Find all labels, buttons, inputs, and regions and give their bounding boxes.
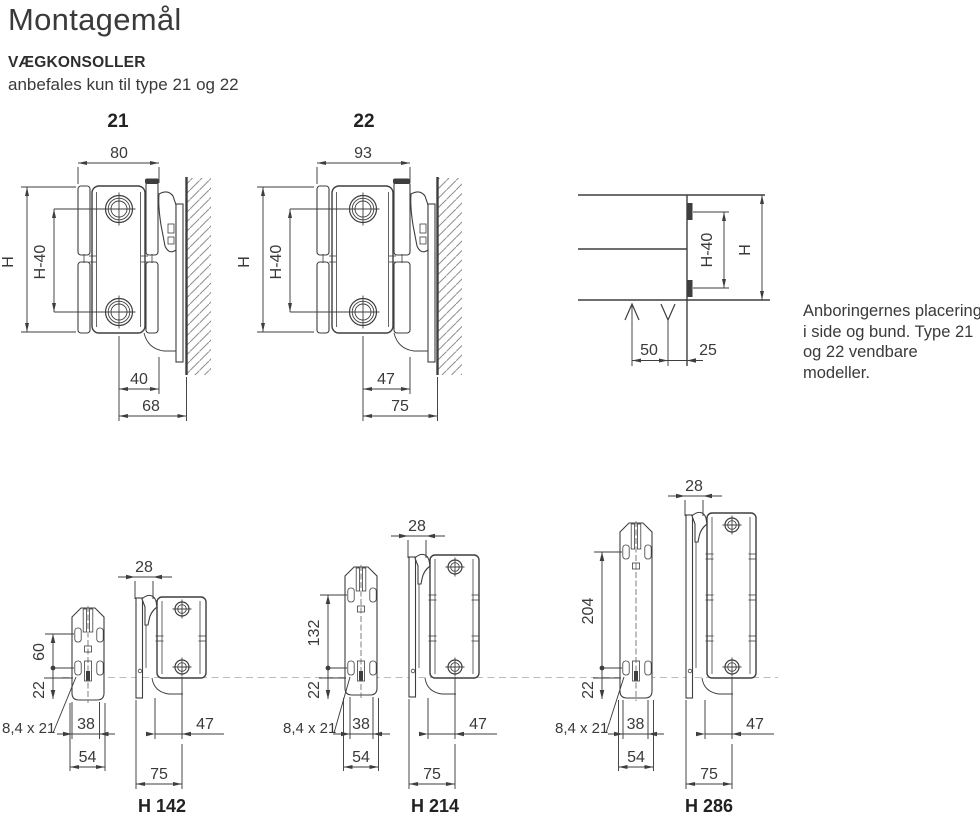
arrowhead [51, 634, 56, 643]
arrowhead [455, 732, 464, 737]
rear-panel [394, 182, 410, 255]
wall-hatching [438, 178, 462, 375]
page: Montagemål VÆGKONSOLLER anbefales kun ti… [0, 0, 980, 822]
top-grille-cap [393, 179, 410, 185]
dim-pipe-to-front: 40 [130, 371, 148, 388]
leader-line [606, 677, 624, 733]
dim-total-depth: 75 [423, 766, 441, 783]
arrowhead [146, 732, 155, 737]
dim-top-depth: 28 [135, 559, 153, 576]
arrowhead [676, 494, 685, 499]
arrowhead [63, 732, 72, 737]
dim-outlet-offset: 25 [699, 342, 717, 359]
dim-height: H [737, 244, 754, 256]
dim-bottom-offset: 22 [306, 681, 323, 699]
dim-top-depth: 28 [408, 518, 426, 535]
arrowhead [126, 575, 135, 580]
front-convector [78, 186, 90, 255]
dim-bottom-offset: 22 [31, 681, 48, 699]
bracket-wall-plate [176, 204, 183, 362]
type21-label: 21 [107, 111, 129, 132]
arrowhead [373, 732, 382, 737]
bracket-foot [425, 678, 456, 694]
dim-tapping-span: H-40 [268, 245, 285, 280]
h142-side-view [136, 595, 207, 698]
radiator-outline [707, 513, 756, 678]
arrowhead [419, 732, 428, 737]
top-grille-cap [145, 179, 159, 185]
h286-label: H 286 [685, 796, 733, 816]
dim-hole-width: 38 [627, 716, 645, 733]
bracket-foot [702, 678, 733, 694]
arrowhead [153, 575, 162, 580]
wall-hatching [187, 178, 211, 375]
front-convector [317, 186, 329, 255]
reference-dot [600, 666, 605, 671]
bracket-hook [692, 512, 707, 542]
dim-pipe-to-wall: 75 [391, 398, 409, 415]
leader-line [334, 677, 350, 733]
dim-pipe-to-wall: 68 [142, 398, 160, 415]
type22-radiator-section [317, 179, 410, 334]
dim-pipe-to-front: 47 [377, 371, 395, 388]
arrowhead [100, 732, 109, 737]
dim-bottom-offset: 22 [580, 681, 597, 699]
arrowhead [600, 552, 605, 561]
bracket-hook [159, 192, 176, 252]
dim-bracket-width: 54 [79, 749, 97, 766]
bracket-foot [394, 333, 428, 351]
dim-bracket-width: 54 [627, 749, 645, 766]
dim-hole-span: 132 [306, 620, 323, 647]
dim-total-depth: 75 [150, 766, 168, 783]
panel-outline [332, 186, 393, 333]
dim-width: 93 [354, 145, 372, 162]
rear-convector [146, 262, 158, 333]
h286-side-view [686, 512, 757, 698]
type22-label: 22 [353, 111, 374, 132]
h214-label: H 214 [411, 796, 459, 816]
dim-inlet-offset: 50 [640, 342, 658, 359]
arrowhead [732, 732, 741, 737]
arrowhead [703, 494, 712, 499]
dim-hole-width: 38 [352, 716, 370, 733]
front-convector [317, 262, 329, 333]
h142-bracket-front-view [72, 606, 104, 703]
dim-front-depth: 47 [196, 716, 214, 733]
dim-front-depth: 47 [746, 716, 764, 733]
dim-tapping-span: H-40 [699, 233, 716, 268]
arrowhead [326, 690, 331, 699]
dim-total-depth: 75 [700, 766, 718, 783]
reference-dot [326, 666, 331, 671]
leader-line [53, 677, 76, 733]
bracket-hook [142, 595, 157, 625]
tapping-bottom [688, 280, 693, 297]
arrowhead [341, 732, 350, 737]
center-slot-fill [634, 671, 638, 681]
arrowhead [426, 534, 435, 539]
end-view-diagram: H-40 H 50 25 [578, 195, 770, 366]
bracket-plate [136, 598, 143, 698]
h286-bracket-front-view [620, 521, 652, 701]
dim-height: H [0, 256, 17, 268]
rear-panel [394, 262, 410, 333]
arrowhead [51, 690, 56, 699]
dim-top-depth: 28 [685, 478, 703, 495]
h214-side-view [409, 554, 480, 697]
center-slot-fill [86, 671, 90, 681]
front-convector [78, 262, 90, 333]
bracket-hook [411, 192, 428, 252]
flow-down-arrow-icon [661, 304, 675, 320]
arrowhead [696, 732, 705, 737]
h286-diagram: 204 22 8,4 x 21 38 54 [555, 478, 774, 816]
h142-diagram: 60 22 8,4 x 21 38 54 [2, 559, 224, 816]
panel-outline [92, 186, 145, 333]
dim-front-depth: 47 [469, 716, 487, 733]
dim-hole-span: 204 [580, 598, 597, 625]
slot-size-label: 8,4 x 21 [283, 720, 336, 737]
arrowhead [687, 358, 696, 363]
bracket-foot [144, 333, 176, 351]
dim-hole-span: 60 [31, 643, 48, 661]
arrowhead [326, 595, 331, 604]
dim-tapping-span: H-40 [32, 245, 49, 280]
arrowhead [600, 690, 605, 699]
center-slot-fill [359, 671, 363, 681]
type21-radiator-section [78, 179, 159, 334]
type22-diagram: 22 [236, 111, 462, 421]
slot-size-label: 8,4 x 21 [555, 720, 608, 737]
h142-label: H 142 [138, 796, 186, 816]
dim-width: 80 [110, 145, 128, 162]
arrowhead [182, 732, 191, 737]
bracket-hook [415, 554, 430, 584]
bracket-wall-plate [428, 204, 435, 362]
bracket-plate [409, 557, 416, 697]
slot-size-label: 8,4 x 21 [2, 720, 55, 737]
dim-height: H [236, 256, 253, 268]
type21-diagram: 21 [0, 111, 211, 421]
dim-hole-width: 38 [77, 716, 95, 733]
technical-drawing: 21 [0, 0, 980, 822]
bracket-foot [152, 678, 183, 694]
tapping-top [688, 203, 693, 220]
dim-bracket-width: 54 [352, 749, 370, 766]
reference-dot [51, 666, 56, 671]
rear-convector [146, 182, 158, 255]
h214-diagram: 132 22 8,4 x 21 38 54 [283, 518, 497, 816]
arrowhead [399, 534, 408, 539]
arrowhead [648, 732, 657, 737]
